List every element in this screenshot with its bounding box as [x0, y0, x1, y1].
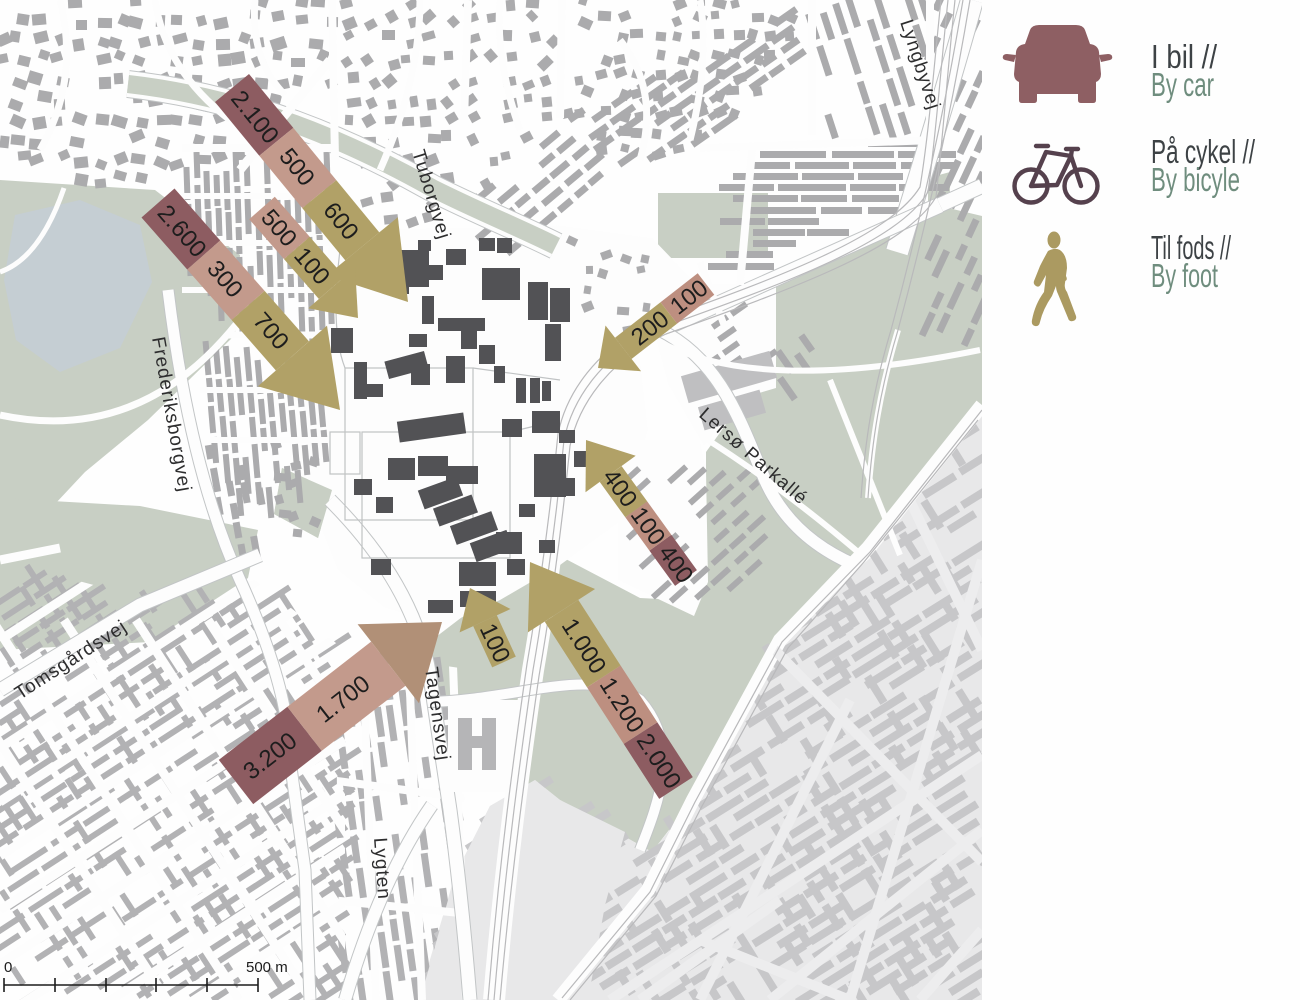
svg-text:By foot: By foot	[1151, 257, 1218, 294]
svg-text:0: 0	[4, 959, 12, 976]
svg-text:By car: By car	[1151, 66, 1214, 103]
svg-text:By bicyle: By bicyle	[1151, 161, 1240, 198]
svg-text:Lygten: Lygten	[369, 837, 394, 901]
svg-text:500 m: 500 m	[246, 959, 288, 976]
